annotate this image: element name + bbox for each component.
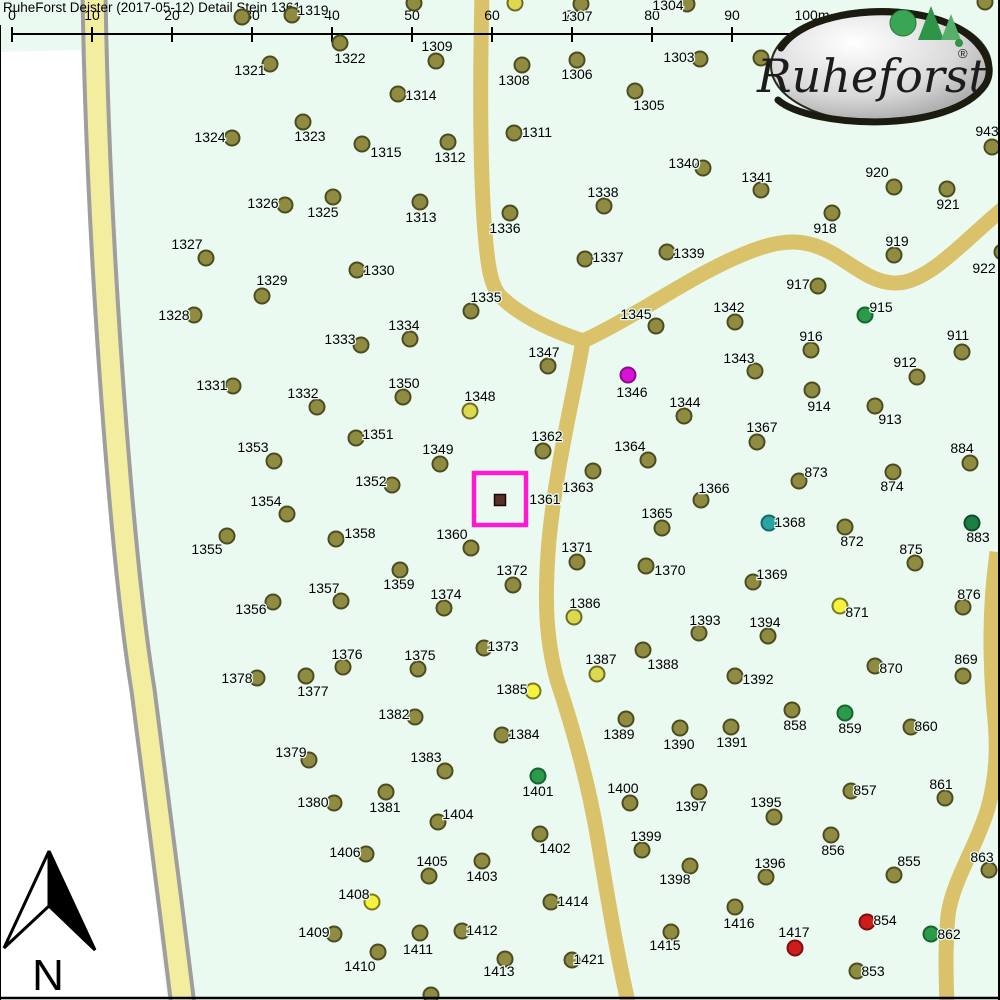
tree-dot-1313 [413,195,428,210]
tree-dot-1362 [536,444,551,459]
tree-dot-1360 [464,541,479,556]
map-title: RuheForst Deister (2017-05-12) Detail St… [3,0,301,15]
tree-label-1303: 1303 [663,49,694,65]
tree-label-1385: 1385 [496,681,527,697]
tree-label-1411: 1411 [403,941,433,957]
tree-label-1311: 1311 [522,124,552,140]
tree-label-1333: 1333 [324,331,355,347]
tree-dot-1371 [570,555,585,570]
tree-dot [235,10,250,25]
tree-label-876: 876 [957,586,981,602]
tree-label-1336: 1336 [489,220,520,236]
tree-label-1323: 1323 [294,128,325,144]
tree-dot-1380 [327,796,342,811]
tree-dot-1315 [355,137,370,152]
tree-label-1367: 1367 [746,419,777,435]
tree-dot-919 [887,248,902,263]
tree-label-1372: 1372 [496,562,527,578]
tree-label-1379: 1379 [275,744,306,760]
tree-dot-1399 [635,843,650,858]
tree-label-1334: 1334 [388,317,419,333]
tree-dot-1351 [349,431,364,446]
tree-label-862: 862 [937,926,961,942]
tree-dot-1395 [767,810,782,825]
tree-label-1401: 1401 [522,783,553,799]
tree-dot-1327 [199,251,214,266]
tree-dot-1325 [326,190,341,205]
tree-label-1375: 1375 [404,647,435,663]
tree-dot-1381 [379,785,394,800]
tree-dot-1349 [433,457,448,472]
tree-dot-1350 [396,390,411,405]
tree-dot-1385 [526,684,541,699]
tree-dot-1417 [788,941,803,956]
tree-dot-943 [985,140,1000,155]
tree-dot-1346 [621,368,636,383]
tree-label-1346: 1346 [616,384,647,400]
tree-label-1406: 1406 [329,844,360,860]
tree-label-1408: 1408 [338,886,369,902]
tree-dot-1308 [515,58,530,73]
tree-label-914: 914 [807,398,831,414]
tree-label-856: 856 [821,842,845,858]
tree-label-1400: 1400 [607,780,638,796]
tree-label-1386: 1386 [569,595,600,611]
tree-label-874: 874 [880,478,904,494]
tree-dot-875 [908,556,923,571]
tree-dot-1384 [495,728,510,743]
tree-label-855: 855 [897,853,921,869]
tree-label-1395: 1395 [750,794,781,810]
tree-dot-1342 [728,315,743,330]
tree-dot-1416 [728,900,743,915]
tree-label-1312: 1312 [434,149,465,165]
tree-dot-1401 [531,769,546,784]
tree-dot-914 [805,383,820,398]
tree-dot-1392 [728,669,743,684]
tree-dot-917 [811,279,826,294]
tree-label-1353: 1353 [237,439,268,455]
tree-label-1349: 1349 [422,441,453,457]
tree-dot-1363 [586,464,601,479]
tree-label-913: 913 [878,411,902,427]
tree-dot-1370 [639,559,654,574]
tree-dot-921 [940,182,955,197]
tree-label-1355: 1355 [191,541,222,557]
tree-label-1374: 1374 [430,586,461,602]
tree-label-853: 853 [861,963,885,979]
tree-dot-1383 [438,764,453,779]
tree-label-1371: 1371 [561,539,592,555]
tree-label-1352: 1352 [355,473,386,489]
tree-dot [978,0,993,10]
tree-label-857: 857 [853,782,877,798]
tree-dot-916 [804,343,819,358]
tree-label-1376: 1376 [331,646,362,662]
tree-dot-1377 [299,669,314,684]
tree-dot-1337 [578,252,593,267]
tree-label-1328: 1328 [158,307,189,323]
tree-label-1347: 1347 [528,344,559,360]
tree-label-1319: 1319 [297,2,328,18]
tree-label-1331: 1331 [196,377,227,393]
tree-dot-1411 [413,926,428,941]
tree-label-1388: 1388 [647,656,678,672]
tree-label-943: 943 [975,123,999,139]
tree-label-1362: 1362 [531,428,562,444]
tree-dot-1406 [359,847,374,862]
tree-dot-1372 [506,578,521,593]
tree-label-1390: 1390 [663,736,694,752]
tree-dot-1364 [641,453,656,468]
tree-label-1345: 1345 [620,306,651,322]
stone-marker [495,495,506,506]
tree-dot-1329 [255,289,270,304]
tree-label-1380: 1380 [297,794,328,810]
tree-dot-1339 [660,245,675,260]
tree-label-1369: 1369 [756,566,787,582]
tree-label-1409: 1409 [298,924,329,940]
tree-label-1378: 1378 [221,670,252,686]
tree-dot-862 [924,927,939,942]
tree-label-1306: 1306 [561,66,592,82]
tree-label-1307: 1307 [561,8,592,24]
tree-label-922: 922 [972,260,996,276]
tree-label-863: 863 [970,849,994,865]
tree-label-871: 871 [845,604,869,620]
tree-dot-855 [887,868,902,883]
tree-dot-1394 [761,629,776,644]
tree-dot-1405 [422,869,437,884]
tree-label-861: 861 [929,776,953,792]
tree-dot-920 [887,180,902,195]
tree-dot-1390 [673,721,688,736]
tree-label-1351: 1351 [362,426,393,442]
tree-label-1324: 1324 [194,129,225,145]
tree-label-1387: 1387 [585,651,616,667]
tree-label-875: 875 [899,541,923,557]
tree-dot [407,0,422,11]
tree-label-1360: 1360 [436,526,467,542]
tree-label-1332: 1332 [287,385,318,401]
tree-dot-1367 [750,435,765,450]
tree-label-1342: 1342 [713,299,744,315]
tree-label-918: 918 [813,220,837,236]
tree-dot-1334 [403,332,418,347]
tree-label-1322: 1322 [334,50,365,66]
tree-label-1344: 1344 [669,394,700,410]
tree-label-917: 917 [786,276,810,292]
tree-dot-1347 [541,359,556,374]
tree-label-1403: 1403 [466,868,497,884]
tree-label-870: 870 [879,660,903,676]
tree-dot-918 [825,206,840,221]
tree-dot-1374 [437,601,452,616]
tree-label-1381: 1381 [369,799,400,815]
tree-label-1337: 1337 [592,249,623,265]
tree-dot-1330 [350,263,365,278]
tree-dot-1331 [226,379,241,394]
tree-dot-1387 [590,667,605,682]
tree-label-1340: 1340 [668,155,699,171]
registered-mark-icon: ® [958,46,968,61]
tree-label-1398: 1398 [659,871,690,887]
tree-label-1373: 1373 [487,638,518,654]
north-label: N [32,951,64,1000]
tree-label-1389: 1389 [603,726,634,742]
tree-label-916: 916 [799,328,823,344]
tree-label-1326: 1326 [247,195,278,211]
tree-dot-1344 [677,409,692,424]
tree-label-1391: 1391 [716,734,747,750]
tree-label-1394: 1394 [749,614,780,630]
tree-label-921: 921 [936,196,960,212]
tree-dot-1314 [391,87,406,102]
tree-label-1358: 1358 [344,525,375,541]
tree-label-1350: 1350 [388,375,419,391]
tree-label-1399: 1399 [630,828,661,844]
tree-label-1384: 1384 [508,726,539,742]
tree-label-1402: 1402 [539,840,570,856]
tree-label-1314: 1314 [405,87,436,103]
tree-label-1410: 1410 [344,958,375,974]
tree-label-1383: 1383 [410,749,441,765]
tree-label-1341: 1341 [741,169,772,185]
tree-label-920: 920 [865,164,889,180]
tree-label-859: 859 [838,720,862,736]
tree-dot-1335 [464,304,479,319]
tree-dot-1403 [475,854,490,869]
tree-label-1335: 1335 [470,289,501,305]
tree-label-1325: 1325 [307,204,338,220]
tree-label-1412: 1412 [466,922,497,938]
tree-label-1356: 1356 [235,601,266,617]
tree-label-1339: 1339 [673,245,704,261]
tree-label-1364: 1364 [614,438,645,454]
tree-label-1329: 1329 [256,272,287,288]
tree-dot-1400 [623,796,638,811]
tree-dot-884 [963,456,978,471]
tree-label-1365: 1365 [641,505,672,521]
tree-dot-1356 [266,595,281,610]
tree-label-1421: 1421 [573,951,604,967]
tree-dot-854 [860,915,875,930]
tree-label-1330: 1330 [363,262,394,278]
tree-label-884: 884 [950,440,974,456]
tree-dot-1389 [619,712,634,727]
tree-dot-856 [824,828,839,843]
tree-label-883: 883 [966,529,990,545]
tree-label-860: 860 [914,718,938,734]
tree-label-1377: 1377 [297,683,328,699]
tree-dot-858 [785,703,800,718]
tree-dot-869 [956,669,971,684]
tree-label-1308: 1308 [498,72,529,88]
tree-label-1415: 1415 [649,937,680,953]
tree-dot-1312 [441,135,456,150]
tree-label-1382: 1382 [378,706,409,722]
tree-dot-1338 [597,199,612,214]
scale-label-90: 90 [724,7,740,23]
tree-label-1357: 1357 [308,580,339,596]
tree-label-1363: 1363 [562,479,593,495]
tree-dot-1324 [225,131,240,146]
logo-wordmark: Ruheforst [756,49,987,103]
tree-label-1348: 1348 [464,388,495,404]
tree-dot-1382 [408,710,423,725]
tree-label-1396: 1396 [754,855,785,871]
tree-dot-912 [910,370,925,385]
tree-dot-911 [955,345,970,360]
tree-label-1370: 1370 [654,562,685,578]
tree-label-872: 872 [840,533,864,549]
tree-label-1354: 1354 [250,493,281,509]
tree-dot-1332 [310,400,325,415]
tree-dot-1375 [411,662,426,677]
tree-label-915: 915 [869,299,893,315]
tree-label-1366: 1366 [698,480,729,496]
tree-dot-1354 [280,507,295,522]
tree-label-1416: 1416 [723,915,754,931]
tree-label-858: 858 [783,717,807,733]
tree-dot-1352 [385,478,400,493]
tree-label-1304: 1304 [652,0,683,13]
tree-dot-1322 [333,36,348,51]
tree-label-869: 869 [954,651,978,667]
tree-label-1417: 1417 [778,924,809,940]
logo-tree-round [890,10,916,36]
tree-label-1309: 1309 [421,38,452,54]
map-window: 0102030405060708090100m RuheForst Deiste… [0,0,1000,1000]
tree-dot-1333 [354,338,369,353]
tree-dot-1353 [267,454,282,469]
tree-dot-1311 [507,126,522,141]
tree-label-1313: 1313 [405,209,436,225]
tree-dot-1303 [693,52,708,67]
tree-label-1305: 1305 [633,97,664,113]
tree-label-1405: 1405 [416,853,447,869]
tree-dot-1391 [724,720,739,735]
tree-label-1393: 1393 [689,612,720,628]
tree-label-1392: 1392 [742,671,773,687]
tree-label-1368: 1368 [774,514,805,530]
tree-dot-1336 [503,206,518,221]
stone-label: 1361 [529,491,560,507]
tree-dot-861 [938,791,953,806]
tree-label-1413: 1413 [483,963,514,979]
tree-dot-1348 [463,404,478,419]
tree-label-1338: 1338 [587,184,618,200]
forest-map-canvas[interactable]: 0102030405060708090100m RuheForst Deiste… [0,0,1000,1000]
tree-label-912: 912 [893,354,917,370]
tree-dot-859 [838,706,853,721]
tree-label-1397: 1397 [675,798,706,814]
tree-label-1343: 1343 [723,350,754,366]
tree-label-919: 919 [885,233,909,249]
tree-dot-1414 [544,895,559,910]
tree-dot-1365 [655,521,670,536]
tree-dot-1396 [759,870,774,885]
tree-label-1315: 1315 [370,144,401,160]
tree-label-1414: 1414 [557,893,588,909]
tree-dot-1358 [329,532,344,547]
tree-label-1327: 1327 [171,236,202,252]
tree-dot-1326 [278,198,293,213]
tree-label-911: 911 [947,327,970,343]
tree-label-1321: 1321 [234,62,265,78]
scale-label-60: 60 [484,7,500,23]
tree-label-854: 854 [873,912,897,928]
tree-dot [508,0,523,11]
tree-label-1359: 1359 [383,576,414,592]
tree-dot-1309 [429,54,444,69]
tree-label-1404: 1404 [442,806,473,822]
tree-label-873: 873 [804,464,828,480]
tree-dot-1386 [567,610,582,625]
